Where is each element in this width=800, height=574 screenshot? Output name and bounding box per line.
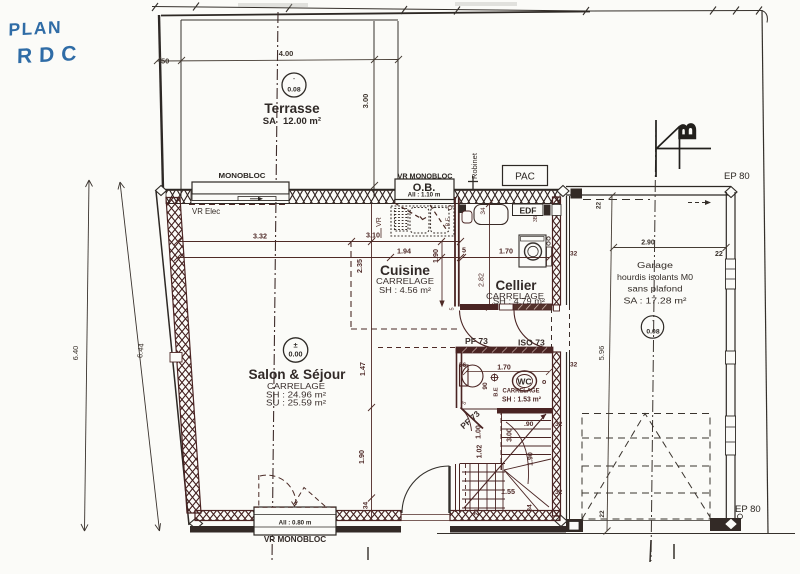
svg-text:34: 34 xyxy=(527,504,534,512)
svg-text:2.82: 2.82 xyxy=(477,273,486,287)
svg-text:Terrasse: Terrasse xyxy=(264,101,320,116)
svg-text:2.90: 2.90 xyxy=(641,240,655,247)
svg-text:VR MONOBLOC: VR MONOBLOC xyxy=(398,174,453,181)
svg-text:±: ± xyxy=(293,341,297,350)
svg-text:34: 34 xyxy=(363,502,370,510)
svg-text:22: 22 xyxy=(599,510,606,518)
svg-text:hourdis isolants M0: hourdis isolants M0 xyxy=(617,272,693,282)
svg-text:3.32: 3.32 xyxy=(253,232,267,241)
svg-text:32: 32 xyxy=(555,421,563,428)
svg-text:32: 32 xyxy=(570,251,578,258)
svg-text:All : 1.10 m: All : 1.10 m xyxy=(408,192,441,199)
svg-text:ISO 73: ISO 73 xyxy=(518,338,545,348)
svg-text:Robinet: Robinet xyxy=(470,152,479,179)
svg-text:6.44: 6.44 xyxy=(135,343,146,359)
svg-text:SA: SA xyxy=(263,116,276,127)
svg-text:5.96: 5.96 xyxy=(597,346,606,361)
svg-text:.90: .90 xyxy=(524,421,534,428)
svg-text:0.08: 0.08 xyxy=(287,87,300,94)
svg-text:All : 0.80 m: All : 0.80 m xyxy=(279,520,312,527)
svg-text:50: 50 xyxy=(161,57,169,66)
svg-text:3B: 3B xyxy=(533,215,539,222)
svg-text:B.E: B.E xyxy=(446,217,452,226)
svg-text:12.00 m²: 12.00 m² xyxy=(283,116,321,127)
svg-text:EP 80: EP 80 xyxy=(724,171,750,182)
svg-text:5: 5 xyxy=(462,246,466,255)
svg-text:SA : 17.28 m²: SA : 17.28 m² xyxy=(624,296,687,306)
svg-text:1.94: 1.94 xyxy=(397,247,411,256)
svg-text:34: 34 xyxy=(480,207,487,215)
svg-text:56: 56 xyxy=(459,362,467,369)
svg-text:1.55: 1.55 xyxy=(501,487,515,496)
svg-text:1.70: 1.70 xyxy=(497,365,511,372)
svg-text:4.00: 4.00 xyxy=(279,49,294,58)
svg-text:CARRELAGE: CARRELAGE xyxy=(376,277,434,286)
svg-text:EDF: EDF xyxy=(520,206,537,216)
svg-text:2.35: 2.35 xyxy=(355,259,364,273)
svg-text:1.90: 1.90 xyxy=(431,249,440,263)
svg-text:3.10: 3.10 xyxy=(366,231,380,240)
svg-text:EP 80: EP 80 xyxy=(735,504,761,515)
svg-text:WC: WC xyxy=(517,377,531,387)
svg-text:3.00: 3.00 xyxy=(507,428,514,442)
svg-text:PLAN: PLAN xyxy=(8,17,62,40)
svg-text:1.90: 1.90 xyxy=(357,450,366,464)
svg-text:1.90: 1.90 xyxy=(528,452,535,466)
svg-text:1.02: 1.02 xyxy=(477,445,484,459)
svg-text:VR MONOBLOC: VR MONOBLOC xyxy=(264,535,326,544)
svg-text:RDC: RDC xyxy=(17,42,84,69)
svg-text:sans plafond: sans plafond xyxy=(628,284,683,294)
svg-text:6.40: 6.40 xyxy=(71,346,80,361)
svg-text:VR Elec: VR Elec xyxy=(192,207,220,216)
svg-text:VR: VR xyxy=(376,217,383,227)
svg-text:1.00: 1.00 xyxy=(476,425,483,439)
svg-text:SH : 4.56 m²: SH : 4.56 m² xyxy=(379,286,431,295)
svg-text:Cuisine: Cuisine xyxy=(380,263,430,278)
svg-text:Garage: Garage xyxy=(637,260,673,270)
svg-text:0.00: 0.00 xyxy=(289,350,303,359)
svg-text:Salon & Séjour: Salon & Séjour xyxy=(249,367,347,382)
svg-text:0.08: 0.08 xyxy=(646,329,659,336)
svg-text:1.47: 1.47 xyxy=(358,362,367,376)
svg-text:32: 32 xyxy=(555,489,563,496)
svg-text:22: 22 xyxy=(715,251,723,258)
svg-text:90: 90 xyxy=(482,382,489,390)
svg-text:3.00: 3.00 xyxy=(361,94,370,109)
svg-text:MONOBLOC: MONOBLOC xyxy=(219,171,266,180)
svg-text:SH : 1.53 m²: SH : 1.53 m² xyxy=(502,397,542,404)
svg-text:1.70: 1.70 xyxy=(499,247,513,256)
svg-text:SH : 4.79 m²: SH : 4.79 m² xyxy=(493,297,545,306)
svg-text:o: o xyxy=(542,379,546,386)
svg-text:21: 21 xyxy=(474,508,481,516)
svg-text:B: B xyxy=(675,123,702,140)
svg-text:SU : 25.59 m²: SU : 25.59 m² xyxy=(266,399,326,408)
svg-text:Cellier: Cellier xyxy=(496,278,538,293)
svg-text:5: 5 xyxy=(450,307,456,310)
svg-text:CARRELAGE: CARRELAGE xyxy=(503,388,541,395)
svg-text:22: 22 xyxy=(596,202,603,210)
svg-text:B.E: B.E xyxy=(494,387,500,397)
svg-text:PAC: PAC xyxy=(515,172,535,183)
svg-text:32: 32 xyxy=(570,362,578,369)
svg-text:PF 73: PF 73 xyxy=(465,336,488,346)
